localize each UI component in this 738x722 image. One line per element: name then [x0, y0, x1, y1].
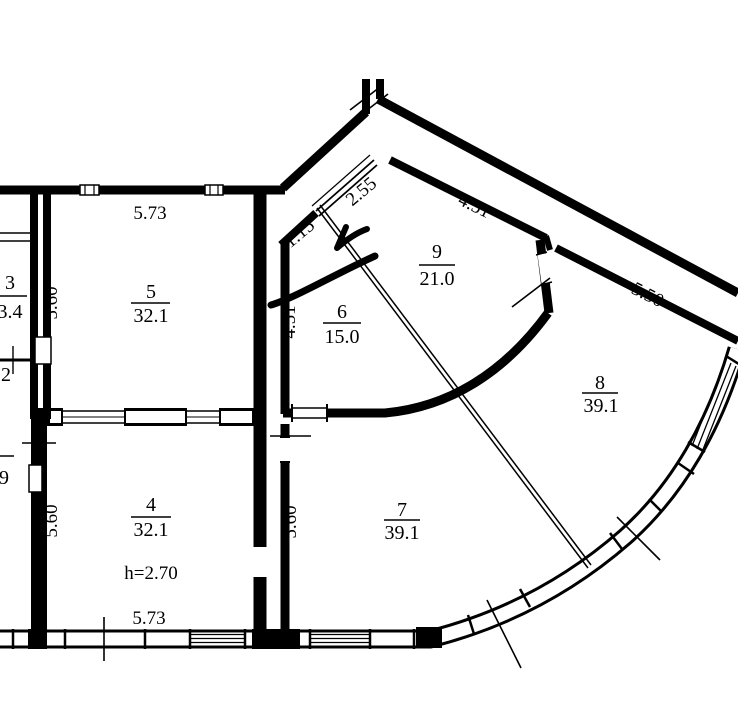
window	[80, 185, 99, 195]
room-8-area: 39.1	[584, 395, 619, 417]
room-4-number: 4	[146, 494, 156, 516]
room-8-number: 8	[595, 372, 605, 394]
bay-outer-wall	[283, 112, 366, 188]
dim-room5-width: 5.73	[133, 203, 166, 224]
partition-door-gap	[542, 254, 546, 283]
room-4-area: 32.1	[134, 519, 169, 541]
room-6-area: 15.0	[325, 326, 360, 348]
room-3-number: 3	[5, 272, 15, 294]
diagonal-wing	[281, 79, 738, 341]
section-line	[317, 205, 591, 568]
floor-plan-page: 33.429532.1432.1615.0739.1839.1921.05.73…	[0, 0, 738, 722]
top-exterior-wall	[0, 185, 285, 195]
dim-bay-window: 2.55	[342, 173, 381, 210]
room-2-number: 2	[1, 364, 11, 386]
wing-inner-jog	[546, 236, 550, 250]
room-5-area: 32.1	[134, 305, 169, 327]
exterior-curved-wall	[0, 349, 738, 649]
window-dividers	[13, 356, 738, 649]
dim-room5-depth: 5.60	[41, 286, 62, 319]
floor-plan-drawing: 33.429532.1432.1615.0739.1839.1921.05.73…	[0, 0, 738, 722]
room-lower-left-area: 9	[0, 467, 9, 489]
thin-details	[0, 233, 660, 668]
room-9-number: 9	[432, 241, 442, 263]
room-5-number: 5	[146, 281, 156, 303]
room-7-number: 7	[397, 499, 407, 521]
dim-room7-depth: 5.60	[280, 505, 301, 538]
room-3-area: 3.4	[0, 301, 23, 323]
window	[205, 185, 223, 195]
room-7-area: 39.1	[385, 522, 420, 544]
door-leaf-stub	[35, 337, 51, 364]
dim-room6-depth: 4.51	[279, 305, 300, 338]
curve-band-outer	[0, 349, 737, 639]
freehand-check-mark	[337, 227, 367, 248]
inner-curved-wall	[283, 313, 548, 422]
note-ceiling-height: h=2.70	[124, 563, 177, 584]
dim-room4-width: 5.73	[132, 608, 165, 629]
labels: 33.429532.1432.1615.0739.1839.1921.05.73…	[0, 173, 667, 629]
wall-stub	[416, 627, 442, 648]
room-6-number: 6	[337, 301, 347, 323]
wall-between-room5-room4	[31, 408, 266, 426]
curve-band-core	[0, 349, 737, 639]
dim-room8-top: 5.50	[628, 278, 667, 312]
dim-room9-top: 4.51	[455, 189, 494, 222]
wing-outer-wall	[378, 99, 738, 293]
dim-room4-depth: 5.60	[41, 504, 62, 537]
wall-stub	[252, 629, 300, 649]
door-leaf-stub	[29, 465, 42, 492]
room-9-area: 21.0	[420, 268, 455, 290]
vertical-wall-doors	[29, 337, 290, 578]
